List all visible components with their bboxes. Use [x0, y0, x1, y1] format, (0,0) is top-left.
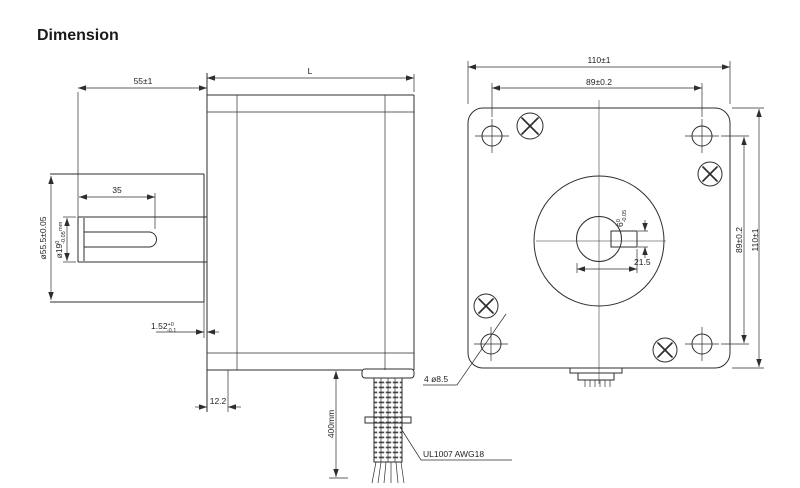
cable-assembly — [362, 369, 414, 483]
dim-keyway-width: 60-0.05 — [615, 210, 628, 227]
dimension-drawing-page: Dimension 55±1 ø55.5±0.05 ø190-0.05mm — [0, 0, 800, 488]
dim-outer-height: 110±1 — [750, 228, 760, 251]
dim-outer-width: 110±1 — [588, 55, 611, 65]
screw-left-lower — [474, 294, 498, 318]
shaft-outline — [78, 217, 207, 262]
dim-flange-step: 12.2 — [210, 396, 227, 406]
mounting-hole-top-right — [685, 119, 719, 153]
dim-shaft-diameter: ø190-0.05mm — [54, 221, 67, 258]
screw-right-upper — [698, 162, 722, 186]
dim-keyway-offset: 21.5 — [634, 257, 651, 267]
label-mounting-holes: 4 ø8.5 — [424, 374, 448, 384]
screw-top-left — [517, 113, 543, 139]
keyway-slot — [84, 232, 157, 247]
screw-bottom-right — [653, 338, 677, 362]
dim-hole-spacing-top: 89±0.2 — [586, 77, 612, 87]
dim-hole-spacing-right: 89±0.2 — [734, 227, 744, 253]
dim-shaft-length: 55±1 — [134, 76, 153, 86]
dimension-drawing: Dimension 55±1 ø55.5±0.05 ø190-0.05mm — [0, 0, 800, 488]
mounting-hole-top-left — [475, 119, 509, 153]
page-title: Dimension — [37, 27, 119, 44]
side-view: 55±1 ø55.5±0.05 ø190-0.05mm 35 1.52+0- — [38, 73, 241, 412]
cable-wires — [372, 462, 404, 483]
body-outline — [207, 95, 414, 370]
body-view: L 400mm UL1007 AWG18 4 ø8.5 — [207, 66, 512, 483]
dim-body-length: L — [308, 66, 313, 76]
front-view: 60-0.05 21.5 — [468, 55, 764, 387]
keyway-rect — [611, 231, 637, 247]
dim-keyway-length: 35 — [112, 185, 122, 195]
dim-pilot-diameter: ø55.5±0.05 — [38, 216, 48, 259]
mounting-holes-leader — [457, 314, 506, 385]
front-cable-exit — [570, 368, 622, 387]
mounting-hole-bottom-left — [474, 327, 508, 361]
mounting-hole-bottom-right — [685, 327, 719, 361]
dim-cable-length: 400mm — [326, 410, 336, 438]
label-cable-spec: UL1007 AWG18 — [423, 449, 484, 459]
cable-gland — [362, 369, 414, 378]
